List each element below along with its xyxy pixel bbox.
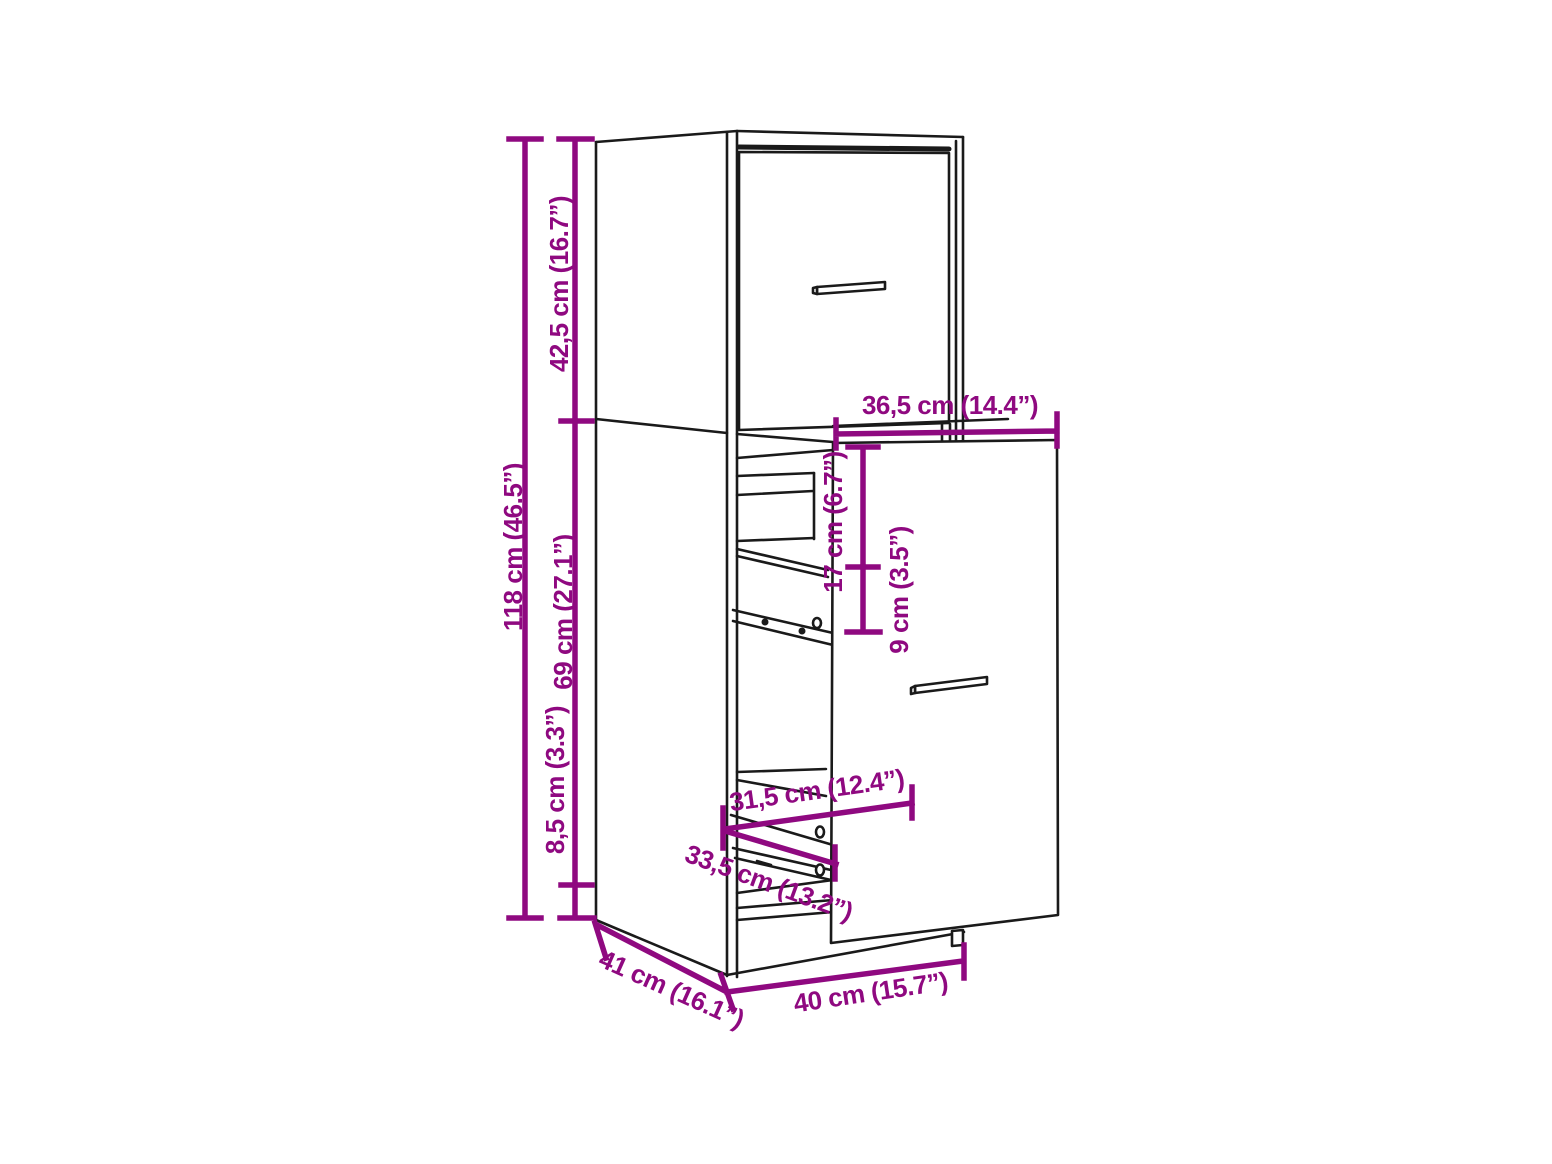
rail-screw-2: [799, 628, 806, 635]
dim-label-shelf-gap: 9 cm (3.5”): [884, 526, 914, 653]
dim-label-upper-section: 42,5 cm (16.7”): [544, 196, 574, 372]
dim-line: [560, 885, 594, 918]
dim-width: 40 cm (15.7”): [721, 945, 964, 1018]
lower-shelf-edge: [737, 769, 826, 772]
inner-drawer-bottom: [737, 538, 814, 541]
upper-door-handle-cap: [813, 287, 817, 294]
inner-drawer-mid: [737, 491, 813, 495]
dim-label-upper-gap: 17 cm (6.7”): [818, 451, 848, 592]
dim-depth: 41 cm (16.1”): [595, 923, 749, 1034]
cabinet-dimension-drawing: 118 cm (46.5”) 42,5 cm (16.7”) 69 cm (27…: [0, 0, 1552, 1164]
rail-bracket: [813, 618, 821, 628]
top-edge: [737, 131, 963, 137]
top-overhang-shadow: [739, 147, 949, 149]
side-top-edge: [596, 131, 737, 142]
dim-upper-section-height: 42,5 cm (16.7”): [544, 139, 592, 421]
dimension-diagram: 118 cm (46.5”) 42,5 cm (16.7”) 69 cm (27…: [0, 0, 1552, 1164]
inner-drawer-top: [737, 473, 814, 476]
dim-label-total-height: 118 cm (46.5”): [498, 463, 528, 631]
rail-hole-2: [816, 865, 824, 876]
rail-screw-1: [762, 619, 769, 626]
rail-hole-1: [816, 827, 824, 838]
section-seam-side: [596, 419, 727, 433]
dim-label-pullout-width: 36,5 cm (14.4”): [862, 390, 1038, 420]
dim-label-lower-section: 69 cm (27.1”): [548, 534, 578, 689]
section-seam-front: [737, 434, 833, 442]
pullout-door-handle-cap: [911, 686, 915, 694]
dim-total-height: 118 cm (46.5”): [498, 139, 541, 918]
dim-label-base-height: 8,5 cm (3.3”): [540, 706, 570, 854]
